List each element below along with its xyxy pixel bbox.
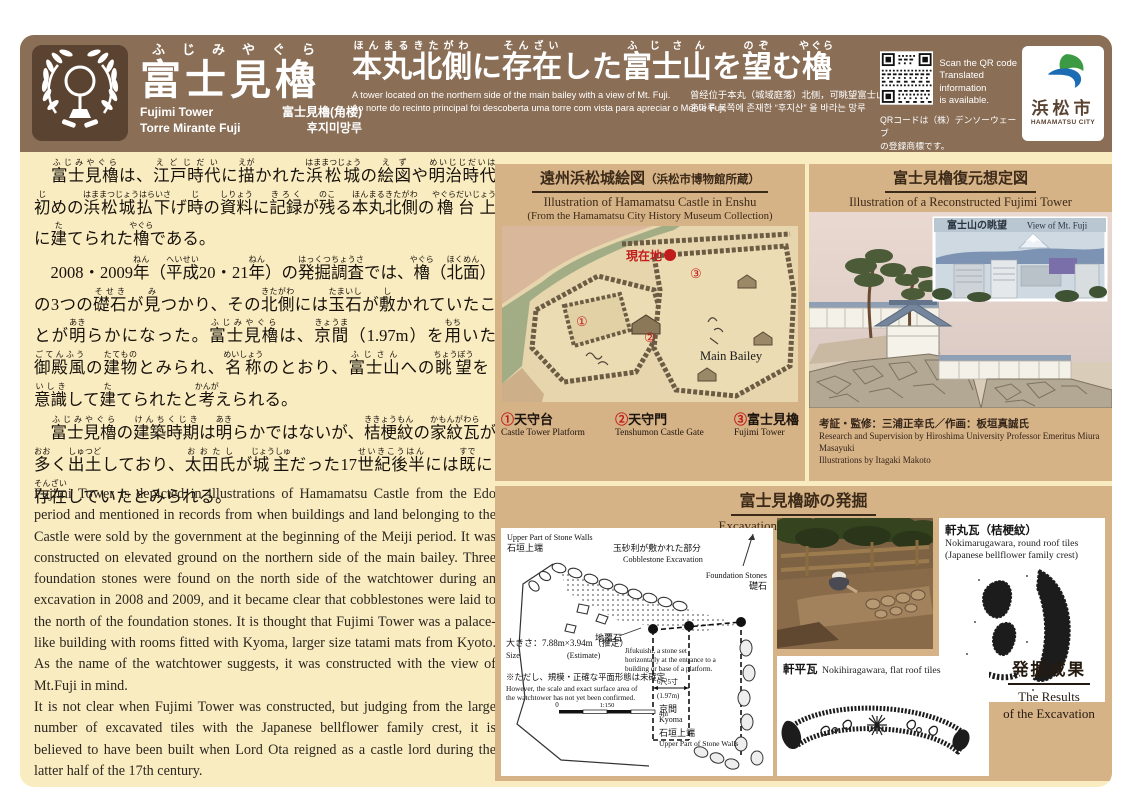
castle-crest-logo bbox=[32, 45, 128, 141]
main-bailey-label: Main Bailey bbox=[700, 349, 763, 363]
page-title: 本丸ほんまる北側きたがわに存在そんざいした富士山ふじさんを望のぞむ櫓やぐら bbox=[352, 41, 882, 86]
plan-upper-stone-en: Upper Part of Stone Walls bbox=[507, 533, 593, 542]
results-block: 発掘成果 The Results of the Excavation bbox=[993, 656, 1105, 723]
city-logo-icon bbox=[1036, 51, 1090, 91]
sign-body: 富士見櫓ふじみやぐらは、江戸時代えどじだいに描えがかれた浜松城はままつじょうの絵… bbox=[20, 152, 1112, 787]
current-location-dot bbox=[664, 249, 676, 261]
map-legend-item-3: ③富士見櫓 Fujimi Tower bbox=[734, 409, 799, 438]
tower-name-furigana: ふじみやぐら bbox=[140, 39, 362, 58]
plan-size-en2: (Estimate) bbox=[567, 651, 601, 660]
plan-scale-0: 0 bbox=[555, 701, 559, 709]
plan-size-en1: Size bbox=[506, 651, 520, 660]
subtitle-chinese: 曾经位于本丸（城域庭落）北侧，可眺望富士山的角楼 bbox=[690, 89, 882, 103]
site-plan-drawing: Upper Part of Stone Walls 石垣上端 玉砂利が敷かれた部… bbox=[501, 528, 773, 776]
photo-label-english: View of Mt. Fuji bbox=[1027, 221, 1088, 231]
plan-scale-ratio: 1:150 bbox=[600, 702, 615, 709]
english-description: Fujimi Tower is depicted in illustration… bbox=[34, 484, 496, 782]
jp-paragraph-2: 2008・2009年ねん（平成へいせい20・21年ねん）の発掘調査はっくつちょう… bbox=[34, 255, 496, 415]
header: ふじみやぐら 富士見櫓 Fujimi Tower 富士見櫓(角楼) Torre … bbox=[20, 35, 1112, 152]
credit-english-2: Illustrations by Itagaki Makoto bbox=[819, 455, 1102, 467]
map-legend: ①天守台 Castle Tower Platform ②天守門 Tenshumo… bbox=[495, 407, 805, 438]
results-title-ja: 発掘成果 bbox=[1008, 656, 1090, 685]
reconstruction-illustration: 富士山の眺望 View of Mt. Fuji bbox=[809, 212, 1112, 408]
plan-lower-stone-en: Upper Part of Stone Walls bbox=[659, 739, 738, 748]
flat-tile-label-ja: 軒平瓦 bbox=[783, 664, 818, 676]
qr-instruction: Scan the QR code Translated information … bbox=[939, 46, 1018, 110]
recon-title: 富士見櫓復元想定図 bbox=[885, 170, 1036, 193]
excavation-title: 富士見櫓跡の発掘 bbox=[731, 492, 875, 516]
map-marker-2: ② bbox=[644, 330, 656, 345]
tower-name-portuguese: Torre Mirante Fuji bbox=[140, 120, 240, 136]
current-location-label: 現在地 bbox=[626, 248, 662, 263]
plan-foundation-ja: 礎石 bbox=[749, 580, 767, 591]
qr-code-icon bbox=[880, 46, 933, 110]
plan-lower-stone-ja: 石垣上端 bbox=[659, 727, 695, 738]
plan-dim-m: (1.97m) bbox=[657, 692, 680, 700]
subtitle-english: A tower located on the northern side of … bbox=[352, 89, 682, 103]
city-name-english: HAMAMATSU CITY bbox=[1022, 119, 1104, 126]
main-title-block: 本丸ほんまる北側きたがわに存在そんざいした富士山ふじさんを望のぞむ櫓やぐら A … bbox=[352, 41, 882, 116]
plan-cobble-en: Cobblestone Excavation bbox=[623, 555, 703, 564]
excavation-panel: 富士見櫓跡の発掘 Excavation Site of Fujimi Tower bbox=[495, 486, 1112, 781]
tower-name-chinese: 富士見櫓(角楼) bbox=[282, 104, 362, 120]
round-tile-label-en1: Nokimarugawara, round roof tiles bbox=[945, 538, 1099, 550]
plan-cobble-ja: 玉砂利が敷かれた部分 bbox=[613, 542, 701, 553]
tower-name-japanese: 富士見櫓 bbox=[140, 58, 362, 104]
map-subtitle-en2: (From the Hamamatsu City History Museum … bbox=[495, 210, 805, 223]
castle-map-panel: 遠州浜松城絵図（浜松市博物館所蔵） Illustration of Hamama… bbox=[495, 164, 805, 481]
crest-icon bbox=[32, 45, 128, 141]
sign-panel: ふじみやぐら 富士見櫓 Fujimi Tower 富士見櫓(角楼) Torre … bbox=[20, 35, 1112, 787]
plan-jifuku-en2: horizontally at the entrance to a bbox=[625, 656, 717, 664]
photo-label-japanese: 富士山の眺望 bbox=[947, 219, 1007, 232]
jp-paragraph-1: 富士見櫓ふじみやぐらは、江戸時代えどじだいに描えがかれた浜松城はままつじょうの絵… bbox=[34, 158, 496, 255]
wreath-left-leaves bbox=[41, 48, 74, 112]
reconstruction-panel: 富士見櫓復元想定図 Illustration of a Reconstructe… bbox=[809, 164, 1112, 481]
signboard-photo: ふじみやぐら 富士見櫓 Fujimi Tower 富士見櫓(角楼) Torre … bbox=[0, 0, 1132, 800]
plan-note-ja: ※ただし、規模・正確な平面形態は未確定 bbox=[506, 672, 666, 682]
plan-jifuku-en3: building or base of a platform. bbox=[625, 665, 713, 673]
map-marker-3: ③ bbox=[690, 266, 702, 281]
plan-scale-4m: 4m bbox=[659, 710, 669, 718]
plan-size-ja: 大きさ：7.88m×3.94m（推定） bbox=[506, 637, 629, 648]
plan-note-en2: the watchtower has not yet been confirme… bbox=[506, 693, 635, 702]
qr-trademark-note: QRコードは（株）デンソーウェーブ の登録商標です。 bbox=[880, 114, 1018, 152]
credit-english-1: Research and Supervision by Hiroshima Un… bbox=[819, 431, 1102, 454]
flat-tile-label-en: Nokihiragawara, flat roof tiles bbox=[822, 665, 941, 676]
hamamatsu-city-box: 浜松市 HAMAMATSU CITY bbox=[1022, 46, 1104, 141]
plan-jifuku-en1: Jifukuishi, a stone set bbox=[625, 647, 687, 655]
site-plan-box: Upper Part of Stone Walls 石垣上端 玉砂利が敷かれた部… bbox=[501, 528, 773, 776]
plan-note-en1: However, the scale and exact surface are… bbox=[506, 684, 638, 693]
en-paragraph-1: Fujimi Tower is depicted in illustration… bbox=[34, 484, 496, 697]
subtitle-portuguese: Ao norte do recinto principal foi descob… bbox=[352, 102, 682, 116]
results-en-1: The Results bbox=[993, 689, 1105, 706]
map-title-collection: （浜松市博物館所蔵） bbox=[645, 174, 760, 186]
plan-foundation-en: Foundation Stones bbox=[706, 571, 767, 580]
map-legend-item-1: ①天守台 Castle Tower Platform bbox=[501, 409, 585, 438]
map-marker-1: ① bbox=[576, 314, 588, 329]
round-tile-label-en2: (Japanese bellflower family crest) bbox=[945, 550, 1099, 562]
map-legend-item-2: ②天守門 Tenshumon Castle Gate bbox=[615, 409, 704, 438]
excavation-photo bbox=[777, 518, 933, 649]
subtitle-korean: 혼마루 북쪽에 존재한 “후지산” 을 바라는 망루 bbox=[690, 102, 882, 116]
castle-map-illustration: 現在地 ③ ① ② Main Bailey bbox=[502, 226, 798, 402]
mt-fuji-photo: 富士山の眺望 View of Mt. Fuji bbox=[932, 218, 1107, 302]
japanese-description: 富士見櫓ふじみやぐらは、江戸時代えどじだいに描えがかれた浜松城はままつじょうの絵… bbox=[34, 158, 496, 512]
tower-name-english: Fujimi Tower bbox=[140, 104, 213, 120]
round-tile-label-ja: 軒丸瓦（桔梗紋） bbox=[945, 522, 1099, 538]
illustration-credits: 考証・監修：三浦正幸氏／作画：板垣真誠氏 Research and Superv… bbox=[809, 413, 1112, 466]
credit-japanese: 考証・監修：三浦正幸氏／作画：板垣真誠氏 bbox=[819, 416, 1102, 431]
map-title: 遠州浜松城絵図 bbox=[540, 171, 645, 187]
city-name-japanese: 浜松市 bbox=[1022, 94, 1104, 119]
tower-name-block: ふじみやぐら 富士見櫓 Fujimi Tower 富士見櫓(角楼) Torre … bbox=[140, 39, 362, 136]
en-paragraph-2: It is not clear when Fujimi Tower was co… bbox=[34, 697, 496, 782]
wreath-right-leaves bbox=[86, 48, 119, 112]
tower-name-korean: 후지미망루 bbox=[307, 120, 362, 136]
flat-tile-drawing bbox=[777, 678, 977, 774]
plan-upper-stone-ja: 石垣上端 bbox=[507, 542, 543, 553]
flat-tile-box: 軒平瓦 Nokihiragawara, flat roof tiles bbox=[777, 656, 989, 776]
map-subtitle-en: Illustration of Hamamatsu Castle in Ensh… bbox=[495, 195, 805, 211]
results-en-2: of the Excavation bbox=[993, 706, 1105, 723]
recon-subtitle: Illustration of a Reconstructed Fujimi T… bbox=[809, 195, 1112, 211]
excavation-photo-box bbox=[777, 518, 933, 649]
qr-block: Scan the QR code Translated information … bbox=[880, 46, 1018, 152]
